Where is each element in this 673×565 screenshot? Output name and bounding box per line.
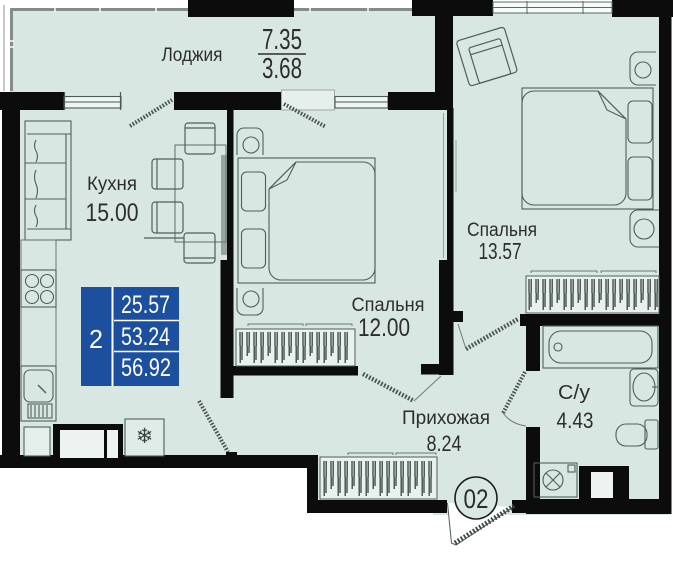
svg-text:Прихожая: Прихожая xyxy=(402,408,490,429)
svg-text:02: 02 xyxy=(464,484,489,514)
svg-text:8.24: 8.24 xyxy=(427,431,462,456)
svg-text:Лоджия: Лоджия xyxy=(162,45,223,66)
svg-text:4.43: 4.43 xyxy=(557,408,594,433)
svg-text:12.00: 12.00 xyxy=(358,314,410,342)
svg-text:53.24: 53.24 xyxy=(121,323,170,351)
svg-text:С/у: С/у xyxy=(558,382,590,404)
svg-text:15.00: 15.00 xyxy=(86,199,139,227)
svg-text:56.92: 56.92 xyxy=(121,354,171,382)
svg-text:Кухня: Кухня xyxy=(87,174,137,195)
svg-text:Спальня: Спальня xyxy=(352,295,425,316)
svg-text:❄: ❄ xyxy=(136,425,154,448)
svg-text:3.68: 3.68 xyxy=(262,53,302,85)
svg-text:13.57: 13.57 xyxy=(479,238,522,264)
svg-text:25.57: 25.57 xyxy=(121,291,170,319)
svg-text:7.35: 7.35 xyxy=(262,24,302,56)
svg-text:2: 2 xyxy=(89,324,103,354)
